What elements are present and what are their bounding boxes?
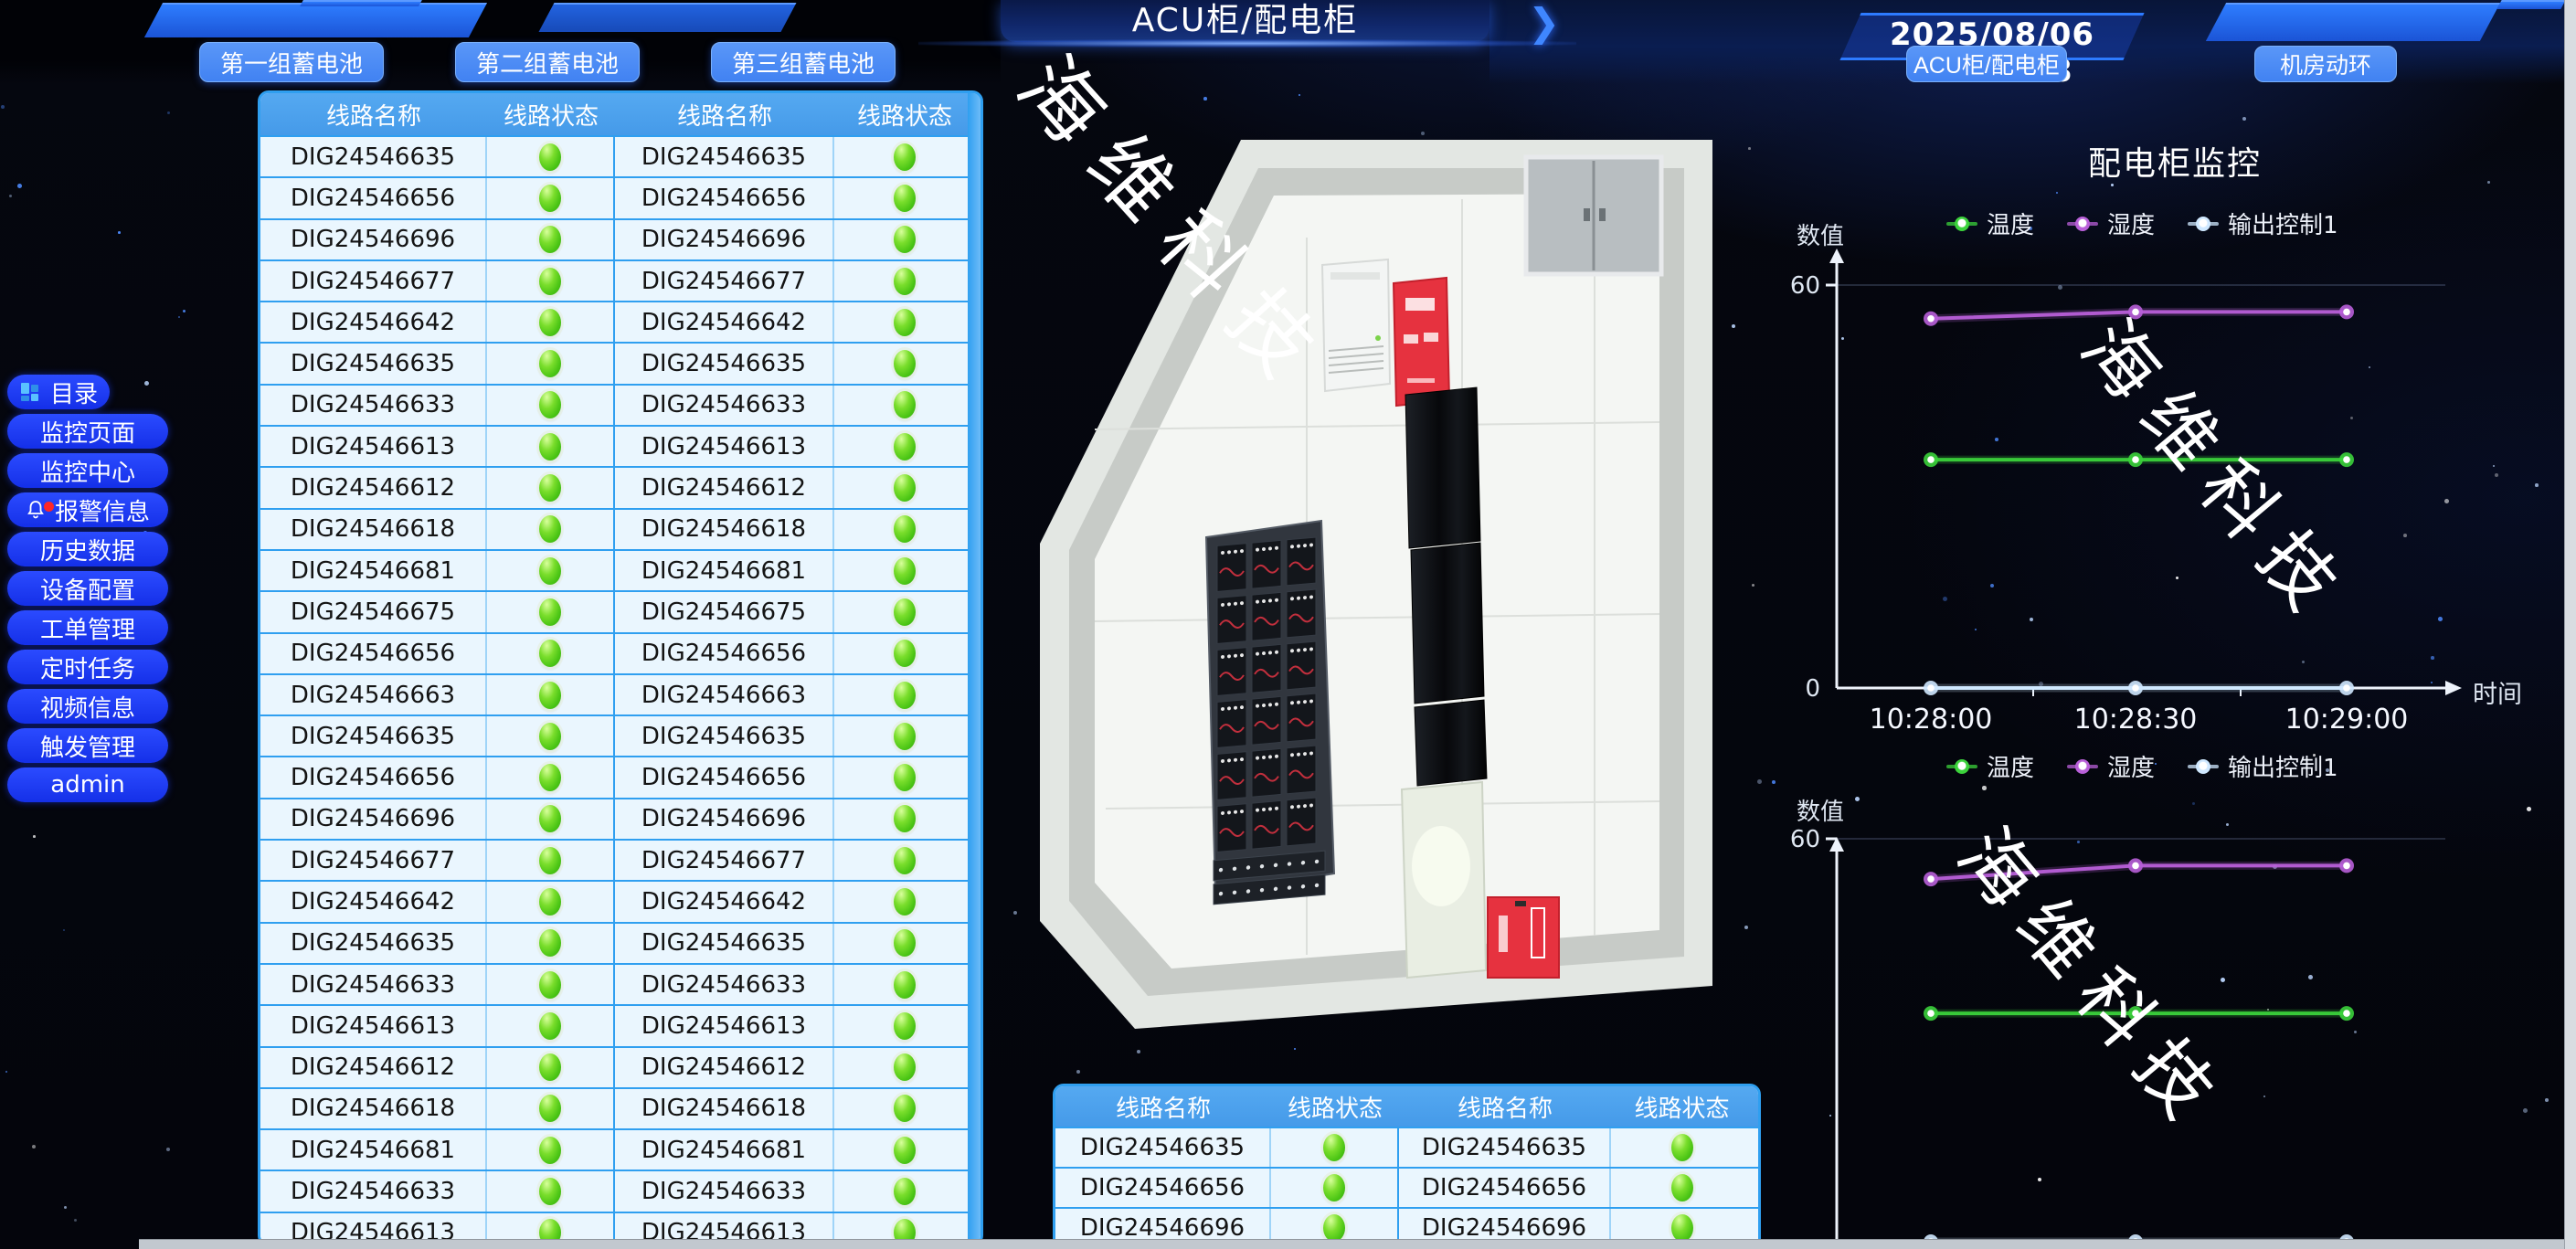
air-conditioner-unit [1322,259,1390,391]
status-dot-green [1323,1214,1345,1242]
line-name-cell: DIG24546663 [615,675,834,714]
line-status-cell [834,261,975,301]
status-dot-green [894,1012,916,1040]
line-status-cell [834,468,975,507]
line-status-cell [834,924,975,963]
legend-marker-icon [2067,217,2098,231]
table-row: DIG24546613DIG24546613 [260,425,981,466]
table-row: DIG24546635DIG24546635 [260,342,981,383]
alert-badge [44,502,54,512]
line-name-cell: DIG24546613 [260,1006,487,1045]
line-status-cell [1271,1169,1399,1207]
star [17,184,22,188]
page-title-banner: ACU柜/配电柜 [1001,0,1489,42]
status-dot-green [894,805,916,832]
star [1982,786,1987,790]
sidebar-item-label: 历史数据 [40,533,135,566]
page-title: ACU柜/配电柜 [1001,0,1489,42]
star [1299,94,1300,96]
status-dot-green [539,1137,561,1164]
table-row: DIG24546696DIG24546696 [260,218,981,259]
star [2487,181,2490,184]
line-status-cell [834,344,975,383]
line-status-cell [487,924,615,963]
status-dot-green [539,350,561,377]
table-row: DIG24546642DIG24546642 [260,301,981,342]
status-dot-green [539,1178,561,1205]
chart-legend-1: 温度湿度输出控制1 [1946,206,2338,240]
legend-item-2[interactable]: 湿度 [2067,749,2155,783]
star [1,105,5,109]
table-row: DIG24546635DIG24546635 [260,135,981,176]
table-row: DIG24546656DIG24546656 [260,756,981,797]
star [1752,584,1754,587]
line-status-cell [487,634,615,673]
status-dot-green [894,185,916,212]
sidebar-item-11[interactable]: admin [7,767,168,802]
line-name-cell: DIG24546656 [260,757,487,797]
status-dot-green [539,557,561,585]
sidebar-item-5[interactable]: 历史数据 [7,532,168,566]
line-name-cell: DIG24546635 [1055,1128,1271,1167]
star [1772,780,1776,784]
table-row: DIG24546656DIG24546656 [260,176,981,217]
line-status-cell [834,1089,975,1128]
status-dot-green [539,1095,561,1122]
status-dot-green [894,268,916,295]
status-dot-green [894,764,916,791]
line-status-cell [487,1171,615,1211]
sidebar-item-6[interactable]: 设备配置 [7,571,168,606]
status-dot-green [539,764,561,791]
star [9,195,12,197]
legend-marker-icon [2188,759,2219,774]
table-row: DIG24546677DIG24546677 [260,839,981,880]
line-status-cell [834,427,975,466]
table-row: DIG24546663DIG24546663 [260,673,981,714]
sidebar-item-1[interactable]: 目录 [7,375,110,409]
line-name-cell: DIG24546618 [260,1089,487,1128]
line-name-cell: DIG24546681 [615,1130,834,1170]
line-status-cell [487,468,615,507]
star [2527,807,2531,811]
table-row: DIG24546612DIG24546612 [260,466,981,507]
line-name-cell: DIG24546633 [615,965,834,1004]
legend-label: 温度 [1987,206,2034,240]
star [1137,1050,1140,1053]
header-decor-bar [144,3,487,37]
line-status-cell [487,137,615,176]
line-name-cell: DIG24546696 [615,220,834,259]
status-dot-green [1323,1134,1345,1161]
table-scrollbar[interactable] [968,93,981,1244]
line-name-cell: DIG24546635 [260,924,487,963]
table-row: DIG24546618DIG24546618 [260,508,981,549]
legend-item-3[interactable]: 输出控制1 [2188,749,2338,783]
sidebar-item-label: 触发管理 [40,729,135,763]
line-name-cell: DIG24546635 [615,344,834,383]
legend-label: 温度 [1987,749,2034,783]
line-name-cell: DIG24546696 [260,220,487,259]
line-status-cell [834,634,975,673]
line-status-cell [487,178,615,217]
line-status-table-main: 线路名称线路状态线路名称线路状态 DIG24546635DIG24546635D… [258,90,983,1246]
status-dot-green [539,640,561,667]
line-status-cell [487,510,615,549]
sidebar-item-9[interactable]: 视频信息 [7,689,168,724]
table-row: DIG24546656DIG24546656 [260,632,981,673]
line-status-cell [834,302,975,342]
status-dot-green [539,805,561,832]
status-dot-green [539,929,561,957]
line-name-cell: DIG24546613 [260,427,487,466]
top-right-nav-button-1[interactable]: ACU柜/配电柜 [1906,46,2067,82]
line-status-cell [834,965,975,1004]
table-row: DIG24546633DIG24546633 [260,384,981,425]
line-status-cell [487,592,615,631]
line-name-cell: DIG24546656 [260,634,487,673]
status-dot-green [539,1053,561,1081]
line-name-cell: DIG24546612 [615,468,834,507]
status-dot-green [539,723,561,750]
line-name-cell: DIG24546613 [615,1006,834,1045]
line-name-cell: DIG24546642 [260,302,487,342]
sidebar-item-label: 视频信息 [40,690,135,724]
line-status-cell [834,1006,975,1045]
svg-text:60: 60 [1790,826,1820,853]
battery-group-button-2[interactable]: 第二组蓄电池 [455,42,640,82]
line-name-cell: DIG24546635 [260,137,487,176]
table-row: DIG24546642DIG24546642 [260,880,981,921]
line-status-cell [1611,1128,1753,1167]
status-dot-green [894,309,916,336]
status-dot-green [894,143,916,171]
status-dot-green [539,474,561,502]
status-dot-green [894,971,916,999]
star [1757,779,1762,784]
line-name-cell: DIG24546633 [260,386,487,425]
sidebar-menu: 目录监控页面监控中心报警信息历史数据设备配置工单管理定时任务视频信息触发管理ad… [7,375,168,807]
line-name-cell: DIG24546681 [615,551,834,590]
star [2242,117,2246,121]
table-header-cell: 线路名称 [1055,1090,1271,1124]
line-status-cell [487,344,615,383]
machine-room-3d-view [1033,128,1727,1042]
table-row: DIG24546675DIG24546675 [260,590,981,631]
line-status-cell [834,1171,975,1211]
line-name-cell: DIG24546656 [1399,1169,1611,1207]
star [1203,97,1207,101]
line-status-cell [834,551,975,590]
table-row: DIG24546633DIG24546633 [260,963,981,1004]
status-dot-green [1671,1214,1693,1242]
line-name-cell: DIG24546656 [615,178,834,217]
chart-legend-2: 温度湿度输出控制1 [1946,749,2338,783]
legend-marker-icon [1946,217,1977,231]
line-status-cell [487,716,615,756]
line-name-cell: DIG24546618 [615,1089,834,1128]
star [1076,1070,1080,1074]
line-status-cell [487,841,615,880]
table-row: DIG24546681DIG24546681 [260,1128,981,1170]
line-name-cell: DIG24546677 [260,261,487,301]
line-name-cell: DIG24546642 [615,882,834,921]
status-dot-green [894,433,916,460]
line-name-cell: DIG24546635 [260,716,487,756]
star [74,1219,77,1222]
sidebar-item-label: 报警信息 [55,493,150,527]
sidebar-item-label: admin [50,771,124,799]
svg-text:10:29:00: 10:29:00 [2285,704,2409,729]
star [1855,797,1860,801]
status-dot-green [894,723,916,750]
line-name-cell: DIG24546635 [615,924,834,963]
star [2192,802,2195,805]
table-header-cell: 线路名称 [615,98,834,132]
table-row: DIG24546613DIG24546613 [260,1004,981,1045]
table-row: DIG24546681DIG24546681 [260,549,981,590]
line-status-cell [834,675,975,714]
svg-text:10:28:30: 10:28:30 [2074,704,2198,729]
line-status-cell [487,302,615,342]
header-decor-bar [538,3,796,32]
line-name-cell: DIG24546613 [615,427,834,466]
line-status-cell [487,386,615,425]
star [63,929,65,931]
status-dot-green [1671,1134,1693,1161]
legend-marker-icon [1946,759,1977,774]
line-name-cell: DIG24546681 [260,1130,487,1170]
table-header-cell: 线路状态 [487,98,615,132]
legend-item-2[interactable]: 湿度 [2067,206,2155,240]
legend-marker-icon [2067,759,2098,774]
sidebar-item-2[interactable]: 监控页面 [7,414,168,449]
line-name-cell: DIG24546677 [615,261,834,301]
star [167,111,170,114]
sidebar-item-label: 目录 [50,376,98,409]
line-name-cell: DIG24546656 [615,757,834,797]
star [1013,911,1017,915]
star [33,835,36,838]
sidebar-item-3[interactable]: 监控中心 [7,453,168,488]
line-status-cell [487,675,615,714]
table-header-cell: 线路状态 [1271,1090,1399,1124]
table-row: DIG24546612DIG24546612 [260,1046,981,1087]
line-chart-2[interactable]: 60 [1782,822,2568,1249]
line-name-cell: DIG24546663 [260,675,487,714]
table-row: DIG24546696DIG24546696 [260,798,981,839]
line-status-cell [487,1130,615,1170]
line-name-cell: DIG24546612 [260,468,487,507]
status-dot-green [894,847,916,874]
star [2056,192,2058,194]
line-name-cell: DIG24546677 [615,841,834,880]
line-status-cell [487,757,615,797]
line-status-cell [487,799,615,839]
battery-group-button-3[interactable]: 第三组蓄电池 [711,42,896,82]
legend-label: 输出控制1 [2228,749,2338,783]
menu-grid-icon [19,381,41,403]
line-status-cell [487,1006,615,1045]
star [166,1148,170,1151]
line-name-cell: DIG24546612 [260,1048,487,1087]
status-dot-green [894,682,916,709]
line-name-cell: DIG24546635 [260,344,487,383]
line-name-cell: DIG24546633 [615,386,834,425]
line-status-table-bottom: 线路名称线路状态线路名称线路状态 DIG24546635DIG24546635D… [1053,1084,1761,1249]
line-status-cell [487,261,615,301]
battery-rack [1206,521,1334,905]
line-status-cell [1611,1169,1753,1207]
status-dot-green [539,391,561,418]
fire-control-cabinet-top [1394,278,1449,406]
line-name-cell: DIG24546618 [615,510,834,549]
status-dot-green [539,309,561,336]
line-status-cell [834,1048,975,1087]
sidebar-item-7[interactable]: 工单管理 [7,610,168,645]
line-name-cell: DIG24546675 [260,592,487,631]
legend-label: 湿度 [2107,206,2155,240]
status-dot-green [539,143,561,171]
table-row: DIG24546677DIG24546677 [260,259,981,301]
svg-text:60: 60 [1790,272,1820,300]
line-name-cell: DIG24546633 [260,1171,487,1211]
status-dot-green [894,515,916,543]
header-decor-bar [2206,3,2500,41]
status-dot-green [894,226,916,253]
line-status-cell [487,1048,615,1087]
star [32,1145,36,1148]
sidebar-item-label: 设备配置 [40,572,135,606]
line-name-cell: DIG24546642 [260,882,487,921]
legend-item-3[interactable]: 输出控制1 [2188,206,2338,240]
line-status-cell [487,220,615,259]
header-decor-bar [2496,0,2565,9]
legend-label: 输出控制1 [2228,206,2338,240]
status-dot-green [894,1137,916,1164]
status-dot-green [539,433,561,460]
line-status-cell [487,882,615,921]
status-dot-green [894,598,916,626]
line-status-cell [834,1130,975,1170]
line-name-cell: DIG24546635 [615,137,834,176]
line-name-cell: DIG24546633 [615,1171,834,1211]
line-name-cell: DIG24546681 [260,551,487,590]
horizontal-scrollbar[interactable] [139,1239,2564,1249]
status-dot-green [539,888,561,916]
status-dot-green [894,1178,916,1205]
sidebar-item-label: 监控中心 [40,454,135,488]
table-row: DIG24546618DIG24546618 [260,1087,981,1128]
table-row: DIG24546656DIG24546656 [1055,1167,1758,1207]
line-name-cell: DIG24546656 [1055,1169,1271,1207]
table-row: DIG24546635DIG24546635 [260,922,981,963]
status-dot-green [894,350,916,377]
table-header-cell: 线路状态 [1611,1090,1753,1124]
star [1732,324,1735,328]
fire-extinguisher-cabinet [1488,897,1559,978]
line-name-cell: DIG24546696 [615,799,834,839]
star [64,1206,67,1209]
status-dot-green [539,185,561,212]
dashboard-root: ACU柜/配电柜 ❯ 2025/08/06 09:51:18 第一组蓄电池第二组… [0,0,2576,1249]
table-row: DIG24546633DIG24546633 [260,1170,981,1211]
line-name-cell: DIG24546635 [1399,1128,1611,1167]
legend-label: 湿度 [2107,749,2155,783]
legend-marker-icon [2188,217,2219,231]
line-chart-1[interactable]: 60010:28:0010:28:3010:29:00 [1782,245,2568,729]
line-name-cell: DIG24546612 [615,1048,834,1087]
status-dot-green [539,268,561,295]
table-header-cell: 线路状态 [834,98,975,132]
status-dot-green [539,1012,561,1040]
line-status-cell [834,882,975,921]
top-right-nav-button-2[interactable]: 机房动环 [2254,46,2397,82]
status-dot-green [894,557,916,585]
status-dot-green [539,847,561,874]
line-status-cell [487,551,615,590]
star [118,231,121,234]
pale-cabinet [1402,782,1486,978]
sidebar-item-label: 监控页面 [40,415,135,449]
star [1294,1048,1296,1050]
bell-icon [26,500,46,520]
line-name-cell: DIG24546675 [615,592,834,631]
sidebar-item-label: 工单管理 [40,611,135,645]
battery-group-button-1[interactable]: 第一组蓄电池 [199,42,384,82]
status-dot-green [539,598,561,626]
svg-text:0: 0 [1805,675,1820,703]
status-dot-green [539,971,561,999]
line-status-cell [834,592,975,631]
star [178,316,180,318]
line-status-cell [487,1089,615,1128]
status-dot-green [539,682,561,709]
table-header-cell: 线路名称 [1399,1090,1611,1124]
status-dot-green [894,391,916,418]
status-dot-green [1671,1174,1693,1201]
sidebar-item-10[interactable]: 触发管理 [7,728,168,763]
status-dot-green [894,1095,916,1122]
star [1744,926,1748,929]
room-door [1526,157,1661,274]
sidebar-item-4[interactable]: 报警信息 [7,492,168,527]
legend-item-1[interactable]: 温度 [1946,749,2034,783]
line-name-cell: DIG24546656 [260,178,487,217]
line-status-cell [834,178,975,217]
line-name-cell: DIG24546677 [260,841,487,880]
line-status-cell [834,386,975,425]
header-decor-bar [300,0,422,6]
line-status-cell [834,757,975,797]
line-status-cell [834,137,975,176]
line-status-cell [834,220,975,259]
line-name-cell: DIG24546618 [260,510,487,549]
svg-text:10:28:00: 10:28:00 [1870,704,1993,729]
sidebar-item-label: 定时任务 [40,651,135,684]
legend-item-1[interactable]: 温度 [1946,206,2034,240]
status-dot-green [894,929,916,957]
line-name-cell: DIG24546656 [615,634,834,673]
line-status-cell [834,716,975,756]
sidebar-item-8[interactable]: 定时任务 [7,650,168,684]
status-dot-green [539,515,561,543]
status-dot-green [1323,1174,1345,1201]
vertical-scrollbar[interactable] [2564,0,2576,1249]
line-status-cell [834,510,975,549]
line-status-cell [834,799,975,839]
star [183,310,186,312]
